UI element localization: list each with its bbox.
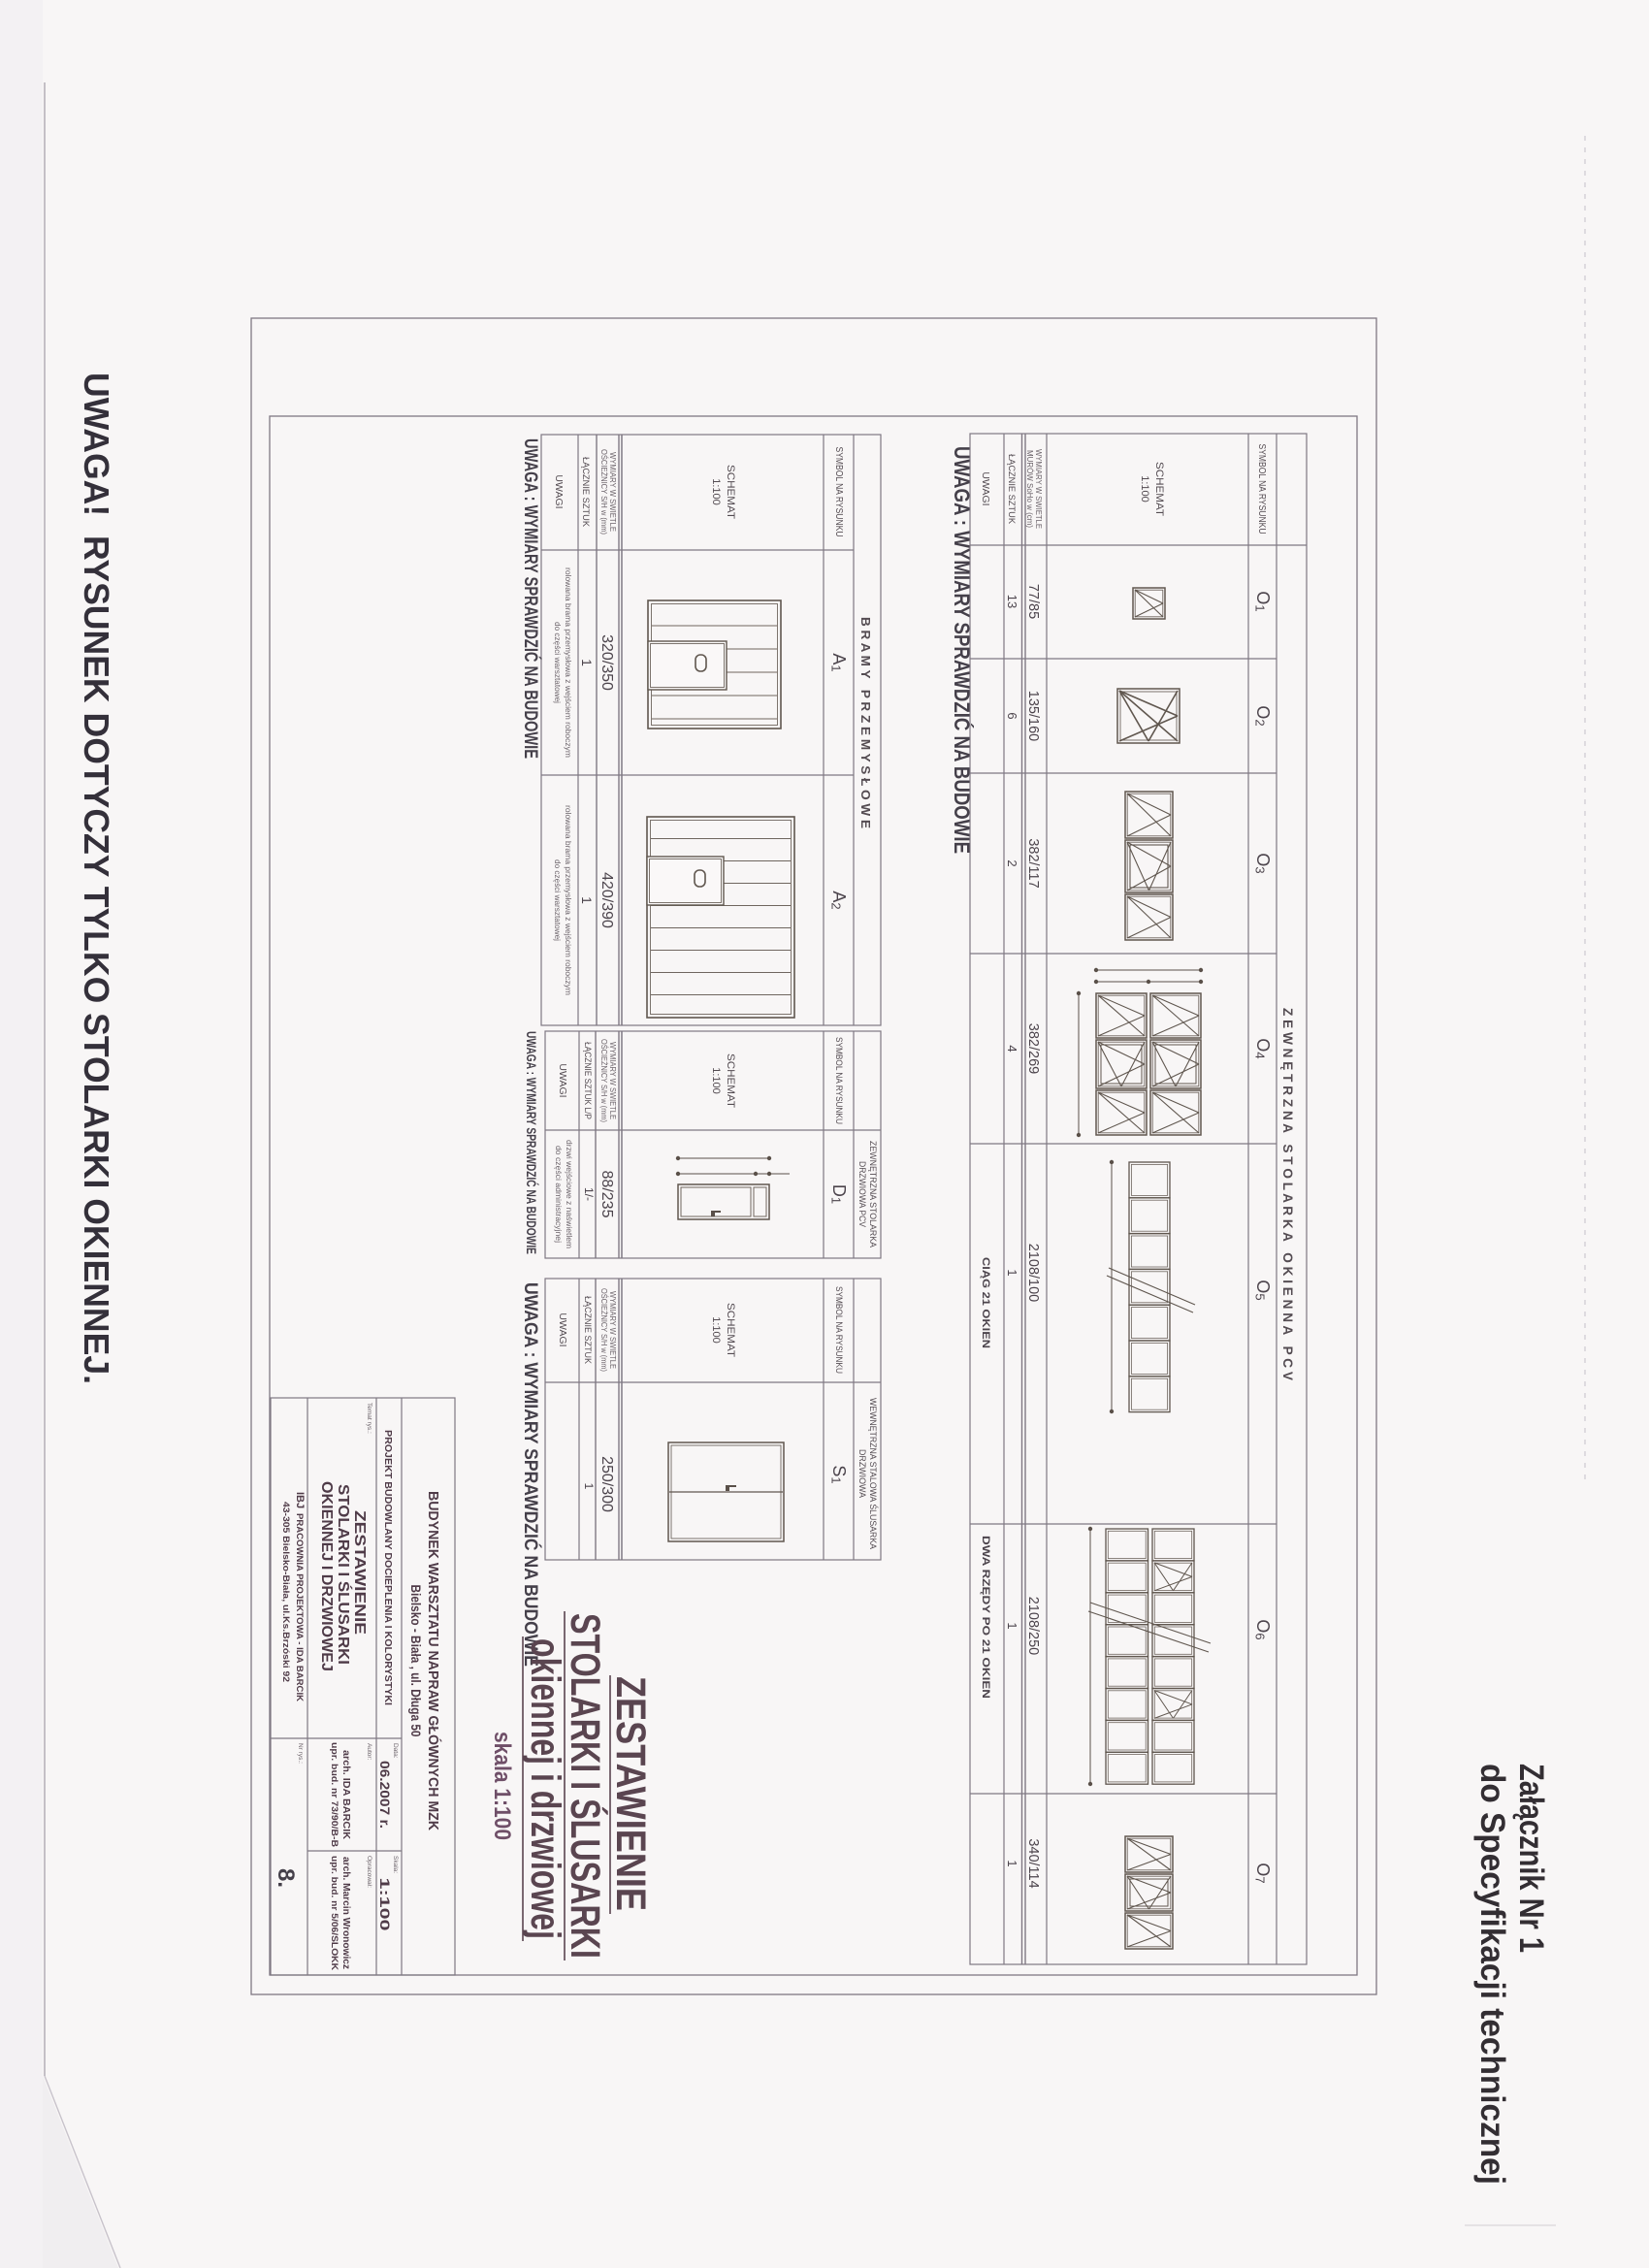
svg-text:1/-: 1/-	[582, 1187, 596, 1201]
svg-text:8.: 8.	[273, 1868, 299, 1888]
svg-text:do części warsztatowej: do części warsztatowej	[553, 859, 563, 941]
svg-text:UWAGA : WYMIARY SPRAWDZIĆ NA B: UWAGA : WYMIARY SPRAWDZIĆ NA BUDOWIE	[520, 438, 541, 759]
svg-text:rolowana brama przemysłowa z w: rolowana brama przemysłowa z wejściem ro…	[564, 805, 573, 995]
svg-text:UWAGA : WYMIARY SPRAWDZIĆ NA B: UWAGA : WYMIARY SPRAWDZIĆ NA BUDOWIE	[524, 1031, 540, 1254]
svg-text:250/300: 250/300	[598, 1456, 615, 1512]
svg-text:OŚCIEŻNICY S/H w (mm): OŚCIEŻNICY S/H w (mm)	[599, 1039, 608, 1122]
svg-text:OKIENNEJ I DRZWIOWEJ: OKIENNEJ I DRZWIOWEJ	[318, 1481, 335, 1671]
svg-text:CIĄG 21 OKIEN: CIĄG 21 OKIEN	[980, 1257, 991, 1348]
svg-text:ŁĄCZNIE SZTUK: ŁĄCZNIE SZTUK	[582, 1296, 593, 1365]
svg-text:320/350: 320/350	[598, 634, 615, 691]
svg-text:do części administracyjnej: do części administracyjnej	[554, 1146, 564, 1243]
svg-text:420/390: 420/390	[598, 872, 615, 928]
svg-text:340/114: 340/114	[1025, 1838, 1041, 1888]
svg-text:OŚCIEŻNICY S/H w (mm): OŚCIEŻNICY S/H w (mm)	[599, 449, 608, 535]
svg-text:upr. bud. nr 5/06/SLOKK: upr. bud. nr 5/06/SLOKK	[329, 1856, 339, 1970]
svg-text:rolowana brama przemysłowa z w: rolowana brama przemysłowa z wejściem ro…	[564, 567, 573, 758]
svg-text:ZEWNĘTRZNA STOLARKA: ZEWNĘTRZNA STOLARKA	[868, 1141, 878, 1247]
svg-text:Autor:: Autor:	[366, 1743, 372, 1761]
svg-text:06.2007 r.: 06.2007 r.	[377, 1761, 393, 1829]
svg-text:do części warsztatowej: do części warsztatowej	[553, 622, 563, 703]
svg-text:1: 1	[579, 896, 595, 904]
svg-text:UWAGA! RYSUNEK DOTYCZY TYLKO: UWAGA! RYSUNEK DOTYCZY TYLKO STOLARKI OK…	[77, 373, 116, 1384]
svg-text:382/117: 382/117	[1025, 838, 1041, 888]
svg-text:1: 1	[582, 1483, 596, 1490]
svg-text:ZESTAWIENIE: ZESTAWIENIE	[607, 1676, 654, 1911]
svg-text:1:100: 1:100	[710, 1067, 722, 1094]
svg-text:Bielsko - Biała , ul. Długa 50: Bielsko - Biała , ul. Długa 50	[408, 1585, 423, 1737]
svg-text:382/269: 382/269	[1025, 1023, 1041, 1074]
svg-text:6: 6	[1005, 712, 1019, 719]
svg-text:ŁĄCZNIE SZTUK: ŁĄCZNIE SZTUK	[580, 457, 591, 528]
svg-text:SYMBOL NA RYSUNKU: SYMBOL NA RYSUNKU	[1256, 444, 1267, 535]
svg-text:SCHEMAT: SCHEMAT	[1153, 462, 1165, 516]
svg-text:WYMIARY W SWIETLE: WYMIARY W SWIETLE	[608, 1042, 617, 1119]
svg-text:DRZWIOWA PCV: DRZWIOWA PCV	[857, 1161, 867, 1227]
svg-text:1:100: 1:100	[710, 1316, 722, 1344]
svg-text:upr. bud. nr 73/90/B-B: upr. bud. nr 73/90/B-B	[329, 1742, 339, 1847]
svg-text:1:100: 1:100	[1139, 475, 1150, 502]
svg-text:Z E W N Ę T R Z N A S T O L: Z E W N Ę T R Z N A S T O L A R K A O K …	[1280, 1008, 1295, 1380]
svg-text:1: 1	[1005, 1269, 1019, 1276]
svg-text:Data:: Data:	[392, 1743, 399, 1759]
svg-text:IBJ: IBJ	[294, 1492, 306, 1508]
svg-text:arch. IDA BARCIK: arch. IDA BARCIK	[340, 1750, 351, 1840]
svg-text:1: 1	[579, 659, 595, 666]
svg-text:DRZWIOWA: DRZWIOWA	[857, 1449, 867, 1498]
svg-text:Załącznik Nr 1: Załącznik Nr 1	[1512, 1764, 1550, 1953]
svg-text:Opracował:: Opracował:	[366, 1856, 372, 1888]
svg-text:2108/100: 2108/100	[1025, 1244, 1041, 1302]
svg-text:43-305 Bielsko-Biała, ul.Ks.Br: 43-305 Bielsko-Biała, ul.Ks.Brzóski 92	[280, 1502, 291, 1682]
svg-text:ZESTAWIENIE: ZESTAWIENIE	[351, 1510, 368, 1635]
svg-text:SYMBOL NA RYSUNKU: SYMBOL NA RYSUNKU	[833, 1037, 844, 1124]
svg-text:UWAGI: UWAGI	[980, 471, 991, 505]
svg-text:B R A M Y P R Z E M Y S Ł O: B R A M Y P R Z E M Y S Ł O W E	[858, 617, 873, 828]
svg-text:WYMIARY W SWIETLE: WYMIARY W SWIETLE	[608, 1291, 617, 1369]
svg-text:SYMBOL NA RYSUNKU: SYMBOL NA RYSUNKU	[833, 1286, 844, 1374]
svg-text:UWAGI: UWAGI	[557, 1312, 568, 1346]
svg-text:Temat rys.:: Temat rys.:	[366, 1403, 372, 1434]
svg-text:4: 4	[1005, 1045, 1019, 1052]
svg-text:Skala:: Skala:	[392, 1856, 399, 1873]
svg-text:do Specyfikacji technicznej: do Specyfikacji technicznej	[1473, 1764, 1511, 2185]
svg-text:okiennej i drzwiowej: okiennej i drzwiowej	[522, 1638, 568, 1939]
svg-text:OŚCIEŻNICY S/H w (mm): OŚCIEŻNICY S/H w (mm)	[599, 1288, 608, 1372]
svg-text:SCHEMAT: SCHEMAT	[725, 1053, 736, 1108]
svg-text:MURÓW SoHo w (cm): MURÓW SoHo w (cm)	[1025, 450, 1034, 528]
svg-text:WEWNĘTRZNA STALOWA ŚLUSARKA: WEWNĘTRZNA STALOWA ŚLUSARKA	[868, 1398, 879, 1549]
svg-text:1:100: 1:100	[710, 478, 722, 505]
svg-text:SYMBOL NA RYSUNKU: SYMBOL NA RYSUNKU	[833, 447, 844, 537]
svg-text:WYMIARY W SWIETLE: WYMIARY W SWIETLE	[608, 452, 617, 532]
svg-text:77/85: 77/85	[1025, 584, 1041, 619]
svg-text:88/235: 88/235	[598, 1171, 615, 1218]
svg-text:SCHEMAT: SCHEMAT	[725, 465, 736, 519]
svg-text:BUDYNEK WARSZTATU NAPRAW GŁÓWN: BUDYNEK WARSZTATU NAPRAW GŁÓWNYCH MZK	[425, 1491, 442, 1831]
svg-text:UWAGA : WYMIARY SPRAWDZIĆ NA B: UWAGA : WYMIARY SPRAWDZIĆ NA BUDOWIE	[950, 446, 974, 854]
svg-text:1: 1	[1005, 1860, 1019, 1866]
svg-text:ŁĄCZNIE SZTUK: ŁĄCZNIE SZTUK	[1006, 454, 1017, 525]
svg-text:WYMIARY W SWIETLE: WYMIARY W SWIETLE	[1034, 449, 1043, 529]
svg-text:13: 13	[1005, 595, 1019, 608]
svg-text:1: 1	[1005, 1622, 1019, 1629]
svg-text:UWAGI: UWAGI	[553, 474, 565, 508]
svg-text:UWAGA : WYMIARY SPRAWDZIĆ NA B: UWAGA : WYMIARY SPRAWDZIĆ NA BUDOWIE	[520, 1282, 541, 1667]
svg-text:DWA RZĘDY PO 21 OKIEN: DWA RZĘDY PO 21 OKIEN	[980, 1536, 991, 1699]
svg-text:STOLARKI I ŚLUSARKI: STOLARKI I ŚLUSARKI	[335, 1484, 353, 1665]
svg-text:135/160: 135/160	[1025, 691, 1041, 741]
svg-text:PROJEKT BUDOWLANY DOCIEPLENIA: PROJEKT BUDOWLANY DOCIEPLENIA I KOLORYST…	[382, 1430, 393, 1705]
svg-text:2108/250: 2108/250	[1025, 1597, 1041, 1655]
svg-text:drzwi wejściowe z naświetlem: drzwi wejściowe z naświetlem	[565, 1140, 574, 1248]
svg-text:skala 1:100: skala 1:100	[489, 1732, 515, 1840]
svg-text:PRACOWNIA PROJEKTOWA - IDA BA: PRACOWNIA PROJEKTOWA - IDA BARCIK	[294, 1513, 305, 1701]
svg-text:ŁĄCZNIE SZTUK L/P: ŁĄCZNIE SZTUK L/P	[583, 1042, 593, 1119]
svg-text:SCHEMAT: SCHEMAT	[725, 1303, 736, 1357]
svg-text:arch. Marcin Wronowicz: arch. Marcin Wronowicz	[340, 1857, 351, 1969]
svg-text:UWAGI: UWAGI	[557, 1063, 568, 1097]
svg-text:1:100: 1:100	[377, 1878, 393, 1931]
svg-text:Nr rys.:: Nr rys.:	[297, 1743, 304, 1764]
svg-text:2: 2	[1005, 859, 1019, 866]
